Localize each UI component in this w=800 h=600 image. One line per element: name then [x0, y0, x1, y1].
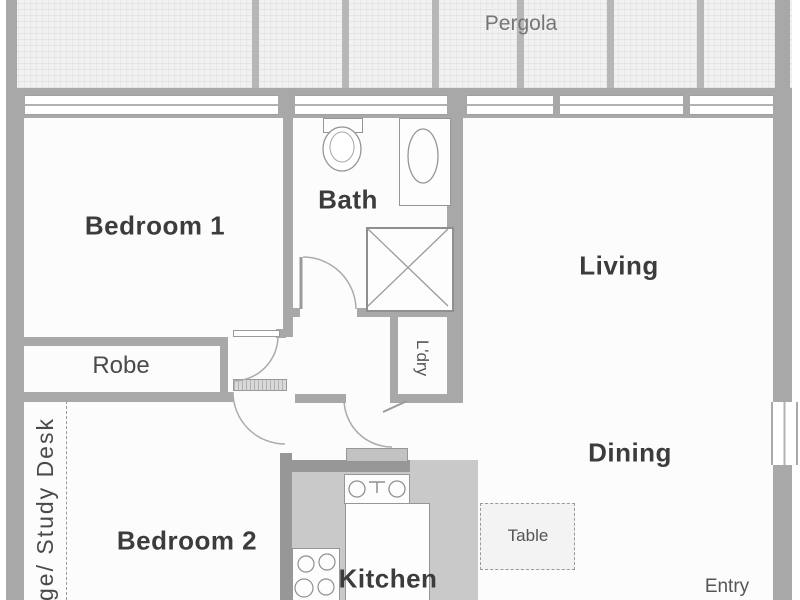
wall-robe-top [24, 337, 228, 346]
bath-label: Bath [318, 185, 378, 216]
shower [366, 227, 454, 312]
pergola-post [607, 0, 614, 88]
laundry-label: L'dry [398, 316, 447, 400]
window-living-2 [560, 95, 683, 115]
kitchen-sink [344, 474, 410, 504]
wall-bedroom1-bath [283, 118, 293, 337]
window-living-3 [690, 95, 773, 115]
wall-laundry-left [390, 308, 398, 403]
table-label: Table [508, 526, 549, 546]
pergola-area [6, 0, 792, 88]
wall-hall-stub [295, 394, 346, 403]
robe-label: Robe [92, 352, 149, 380]
bedroom2-door-leaf [233, 379, 287, 391]
study-nook-label: ge/ Study Desk [23, 398, 67, 600]
window-living-1 [467, 95, 553, 115]
wall-kitchen-left [280, 453, 292, 600]
bedroom1-door-leaf [233, 330, 280, 337]
living-label: Living [579, 251, 659, 282]
basin [399, 118, 451, 206]
bedroom1-label: Bedroom 1 [85, 211, 225, 242]
study-nook: ge/ Study Desk [22, 398, 68, 600]
pergola-post [252, 0, 259, 88]
wall-bath-stub [283, 308, 300, 317]
entry-label: Entry [705, 576, 749, 598]
pergola-post [342, 0, 349, 88]
fridge-space [346, 448, 408, 462]
window-bath [295, 95, 447, 115]
laundry-closet: L'dry [398, 316, 447, 400]
bedroom2-label: Bedroom 2 [117, 526, 257, 557]
pergola-post [697, 0, 704, 88]
wall-right [773, 88, 792, 600]
wall-right-pergola [775, 0, 790, 88]
window-bedroom1 [25, 95, 278, 115]
pergola-post [432, 0, 439, 88]
dining-label: Dining [588, 438, 672, 469]
cooktop [292, 548, 340, 600]
toilet-tank [323, 118, 363, 133]
wall-left-pergola [6, 0, 17, 88]
pergola-label: Pergola [485, 12, 557, 36]
floor-plan: ge/ Study Desk L'dry Pergola Bedroo [0, 0, 800, 600]
window-dining [771, 402, 798, 465]
kitchen-label: Kitchen [339, 564, 438, 595]
